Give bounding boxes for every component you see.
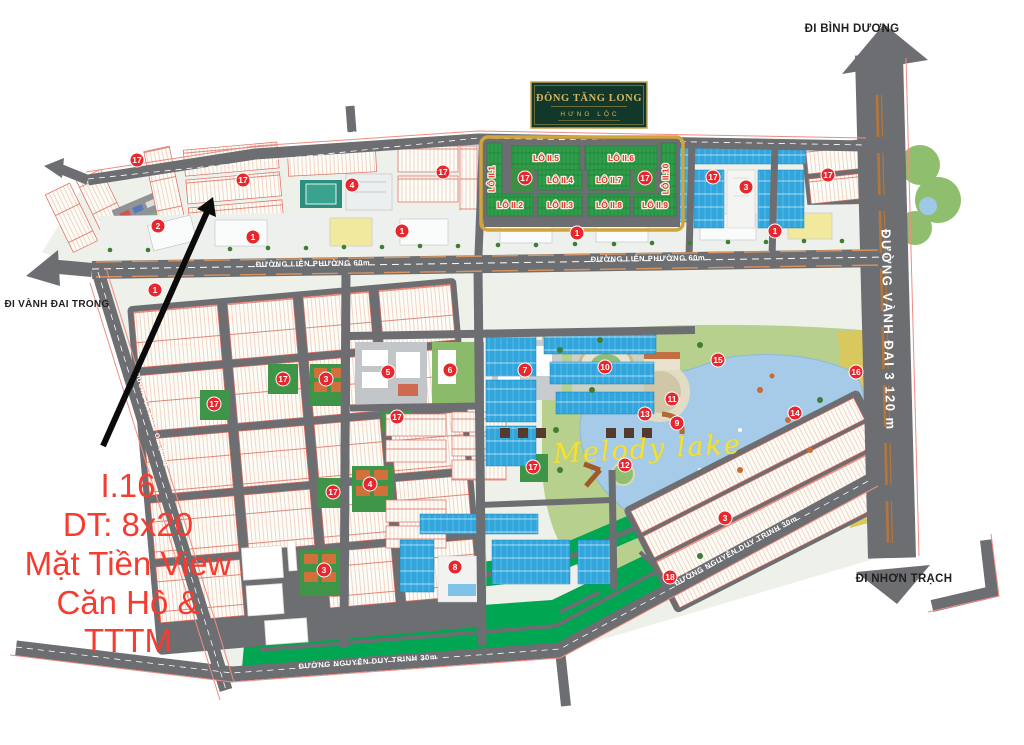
map-marker: 17 <box>326 485 340 499</box>
lot-label: LÔ II.1 <box>486 166 497 192</box>
lot-label: LÔ II.3 <box>547 199 573 210</box>
lot-label: LÔ II.10 <box>660 163 671 194</box>
map-marker: 17 <box>638 171 652 185</box>
svg-text:1: 1 <box>575 228 580 238</box>
svg-text:15: 15 <box>713 355 723 365</box>
map-marker: 8 <box>448 560 462 574</box>
svg-text:1: 1 <box>400 226 405 236</box>
road-label-lien-phuong-2: ĐƯỜNG LIÊN PHƯỜNG 60m <box>591 253 706 264</box>
map-marker: 10 <box>598 360 612 374</box>
map-marker: 13 <box>638 407 652 421</box>
road-label-lien-phuong-1: ĐƯỜNG LIÊN PHƯỜNG 60m <box>256 258 371 269</box>
lot-label: LÔ II.7 <box>596 174 622 185</box>
svg-text:17: 17 <box>438 167 448 177</box>
svg-text:17: 17 <box>528 462 538 472</box>
svg-text:17: 17 <box>328 487 338 497</box>
svg-text:I.16: I.16 <box>100 467 155 504</box>
map-marker: 17 <box>821 168 835 182</box>
map-marker: 12 <box>618 458 632 472</box>
svg-text:4: 4 <box>368 479 373 489</box>
svg-text:17: 17 <box>520 173 530 183</box>
svg-text:DT: 8x20: DT: 8x20 <box>63 506 193 543</box>
map-marker: 14 <box>788 406 802 420</box>
map-marker: 18 <box>663 570 677 584</box>
logo-subtitle: HƯNG LỘC <box>560 109 619 118</box>
svg-text:5: 5 <box>386 367 391 377</box>
map-marker: 1 <box>246 230 260 244</box>
svg-text:17: 17 <box>209 399 219 409</box>
svg-text:14: 14 <box>790 408 800 418</box>
svg-text:8: 8 <box>453 562 458 572</box>
svg-text:16: 16 <box>851 367 861 377</box>
lot-label: LÔ II.9 <box>642 199 668 210</box>
svg-text:10: 10 <box>600 362 610 372</box>
svg-text:11: 11 <box>668 394 677 404</box>
direction-nhon-trach: ĐI NHƠN TRẠCH <box>856 573 953 585</box>
map-marker: 3 <box>319 372 333 386</box>
svg-text:2: 2 <box>156 221 161 231</box>
svg-text:17: 17 <box>132 155 142 165</box>
svg-text:18: 18 <box>665 572 675 582</box>
master-plan-page: LÔ II.1 LÔ II.5 LÔ II.6 LÔ II.10 LÔ II.4… <box>0 0 1024 745</box>
lot-label: LÔ II.2 <box>497 199 523 210</box>
logo-title: ĐÔNG TĂNG LONG <box>536 91 642 104</box>
svg-text:3: 3 <box>324 374 329 384</box>
map-marker: 1 <box>148 283 162 297</box>
map-marker: 17 <box>518 171 532 185</box>
svg-text:17: 17 <box>708 172 718 182</box>
svg-text:Căn Hộ &: Căn Hộ & <box>56 584 199 621</box>
svg-text:3: 3 <box>723 513 728 523</box>
svg-text:3: 3 <box>322 565 327 575</box>
map-marker: 17 <box>276 372 290 386</box>
lot-label: LÔ II.4 <box>547 174 573 185</box>
map-marker: 1 <box>768 224 782 238</box>
map-marker: 2 <box>151 219 165 233</box>
map-marker: 5 <box>381 365 395 379</box>
svg-text:17: 17 <box>640 173 650 183</box>
svg-text:7: 7 <box>523 365 528 375</box>
svg-text:9: 9 <box>675 418 680 428</box>
map-marker: 1 <box>395 224 409 238</box>
map-marker: 4 <box>363 477 377 491</box>
map-marker: 16 <box>849 365 863 379</box>
map-marker: 17 <box>706 170 720 184</box>
svg-text:4: 4 <box>350 180 355 190</box>
map-marker: 17 <box>526 460 540 474</box>
map-marker: 17 <box>130 153 144 167</box>
svg-text:17: 17 <box>823 170 833 180</box>
svg-text:13: 13 <box>640 409 650 419</box>
map-marker: 15 <box>711 353 725 367</box>
lot-label: LÔ II.6 <box>608 152 634 163</box>
map-marker: 7 <box>518 363 532 377</box>
svg-text:17: 17 <box>238 175 248 185</box>
map-marker: 3 <box>718 511 732 525</box>
map-marker: 6 <box>443 363 457 377</box>
highlight-box: LÔ II.1 LÔ II.5 LÔ II.6 LÔ II.10 LÔ II.4… <box>481 137 683 230</box>
map-marker: 3 <box>317 563 331 577</box>
direction-binh-duong: ĐI BÌNH DƯƠNG <box>805 22 900 35</box>
direction-vanh-dai-trong: ĐI VÀNH ĐAI TRONG <box>4 297 109 310</box>
svg-text:17: 17 <box>278 374 288 384</box>
site-map-image: LÔ II.1 LÔ II.5 LÔ II.6 LÔ II.10 LÔ II.4… <box>0 0 1024 745</box>
map-marker: 17 <box>236 173 250 187</box>
map-marker: 9 <box>670 416 684 430</box>
map-marker: 1 <box>570 226 584 240</box>
map-marker: 11 <box>665 392 679 406</box>
svg-text:1: 1 <box>773 226 778 236</box>
svg-text:1: 1 <box>251 232 256 242</box>
lot-label: LÔ II.8 <box>596 199 622 210</box>
map-marker: 3 <box>739 180 753 194</box>
svg-text:17: 17 <box>392 412 402 422</box>
project-logo: ĐÔNG TĂNG LONG HƯNG LỘC <box>531 82 647 128</box>
map-marker: 17 <box>390 410 404 424</box>
svg-text:12: 12 <box>620 460 630 470</box>
svg-text:TTTM: TTTM <box>84 622 172 659</box>
lot-label: LÔ II.5 <box>533 152 559 163</box>
map-marker: 4 <box>345 178 359 192</box>
map-marker: 17 <box>436 165 450 179</box>
svg-text:Mặt Tiền View: Mặt Tiền View <box>25 545 232 582</box>
svg-text:3: 3 <box>744 182 749 192</box>
svg-text:1: 1 <box>153 285 158 295</box>
map-marker: 17 <box>207 397 221 411</box>
svg-text:6: 6 <box>448 365 453 375</box>
